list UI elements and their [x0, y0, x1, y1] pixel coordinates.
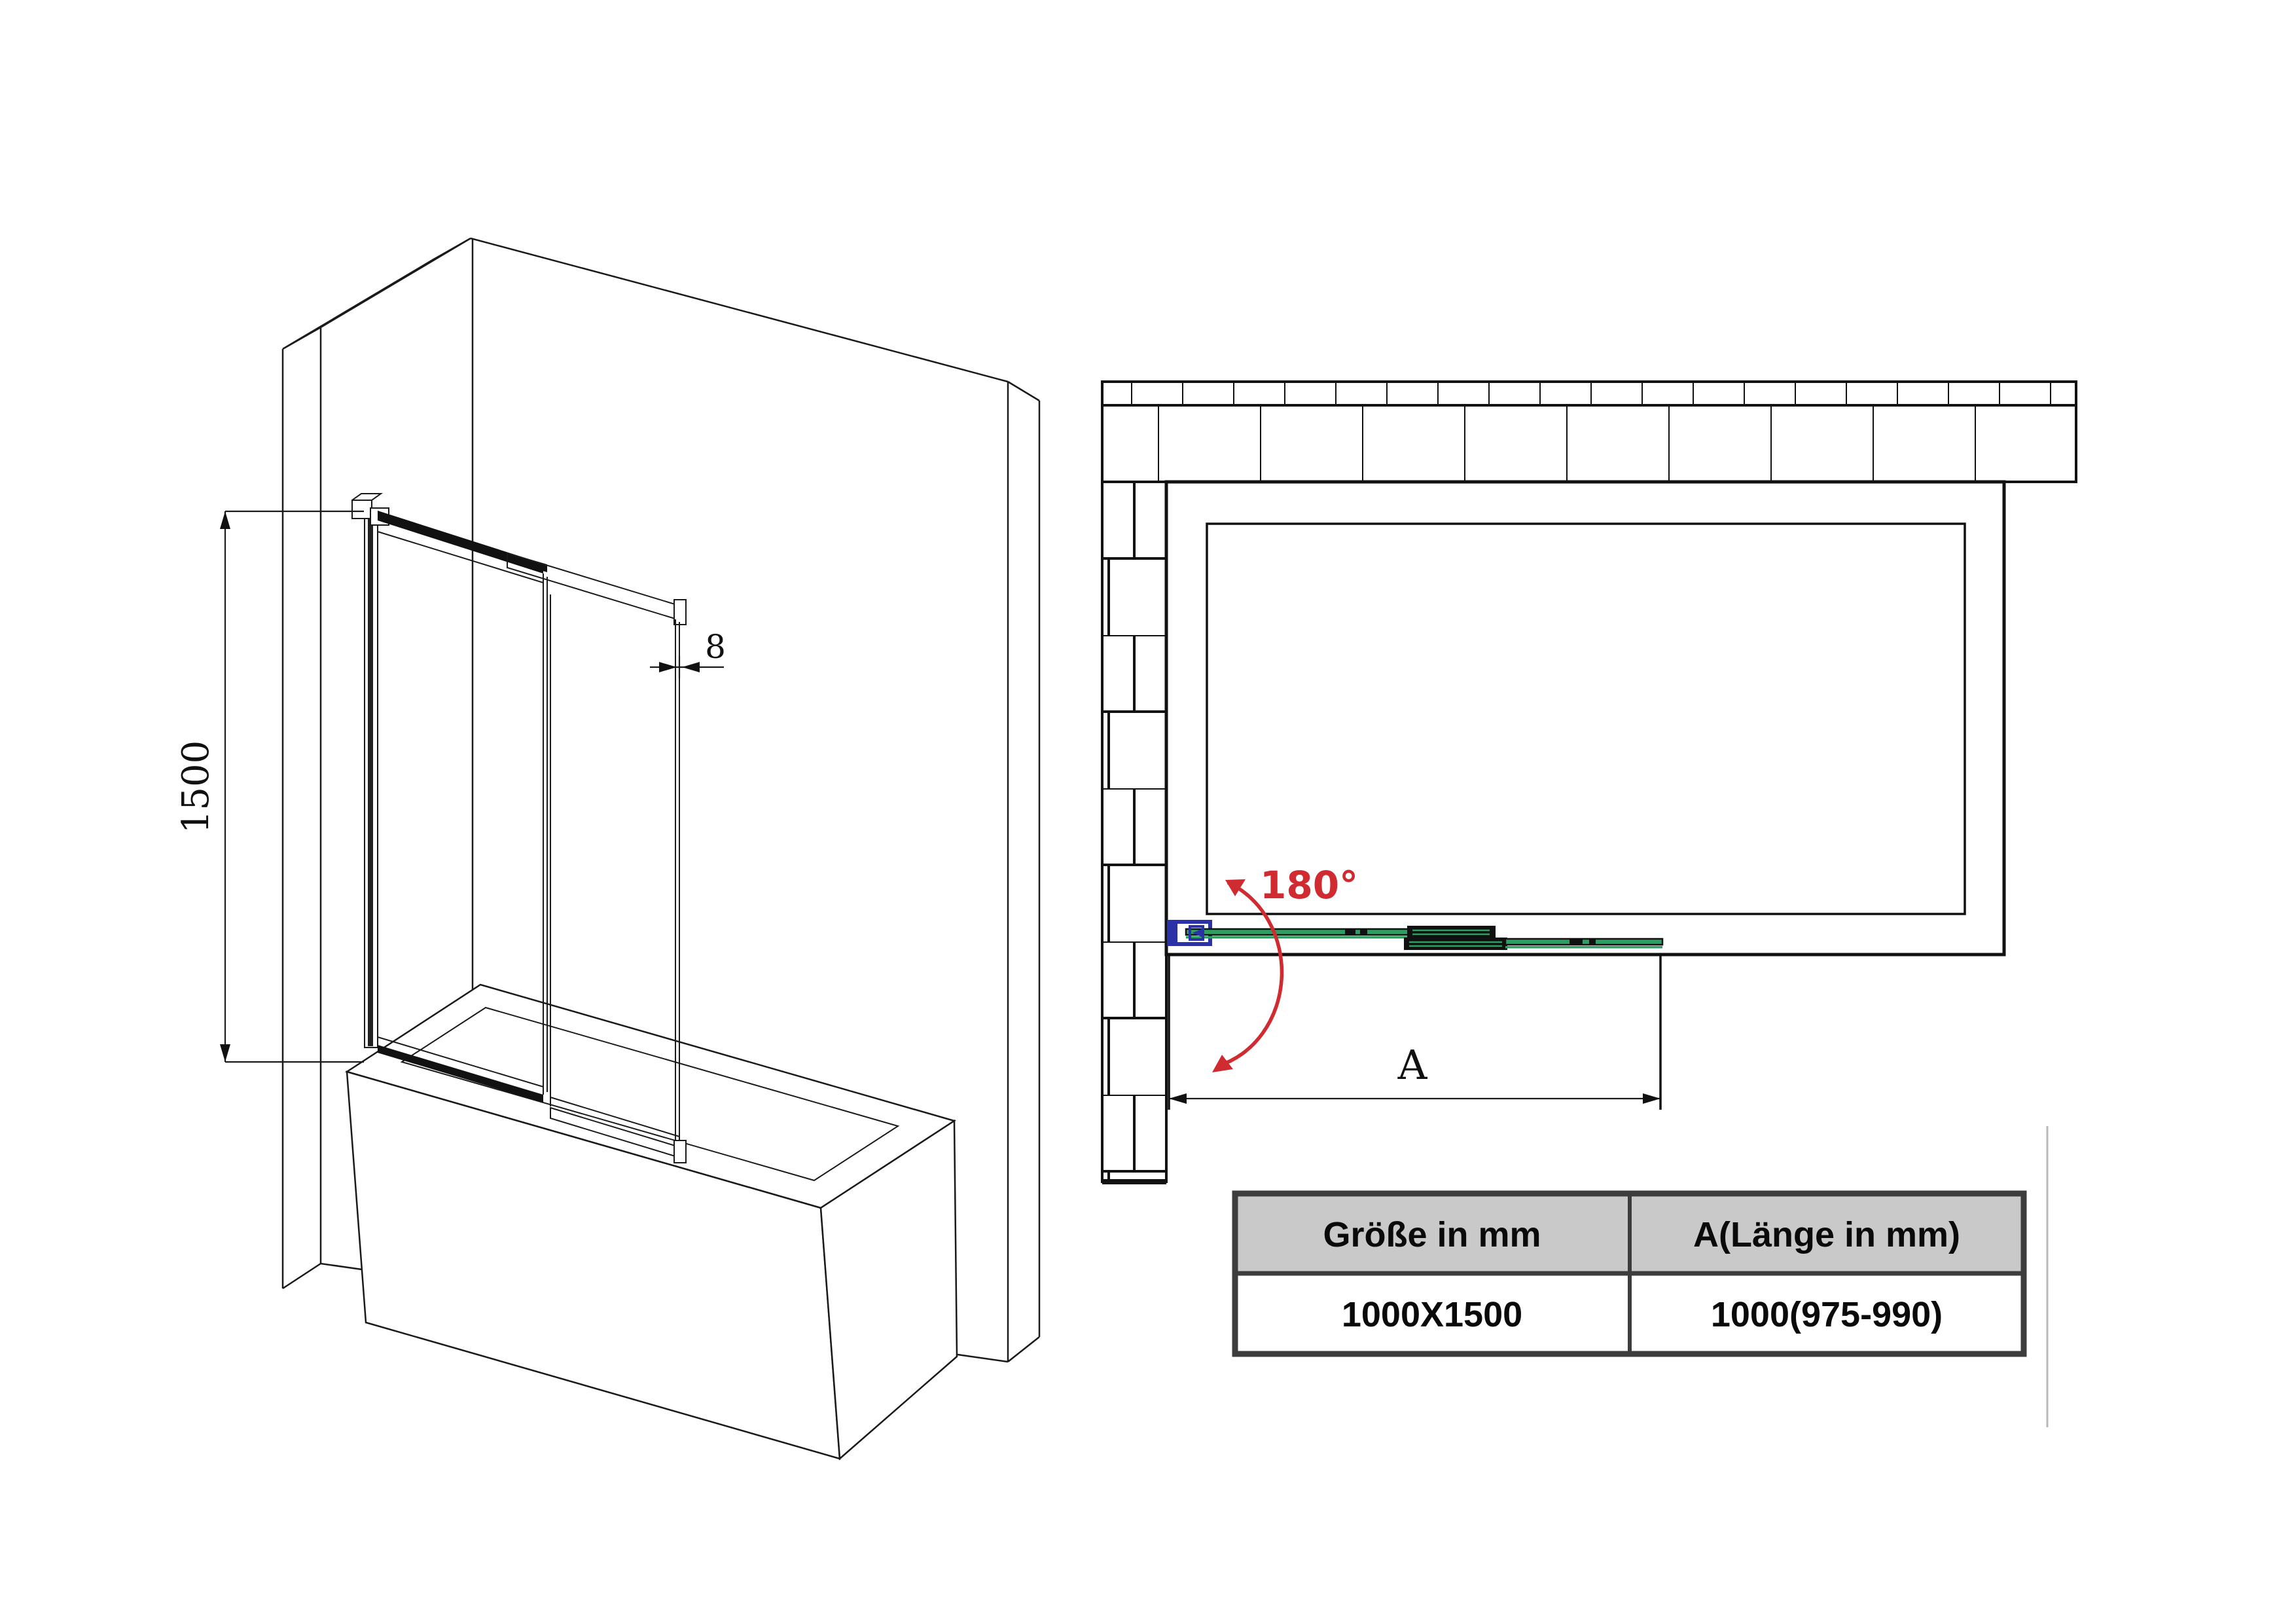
roller-hardware-sliding — [1404, 938, 1507, 950]
table-header-length: A(Länge in mm) — [1693, 1215, 1960, 1254]
tub-rim-outline — [1207, 524, 1965, 914]
swing-arc — [1218, 883, 1282, 1066]
table-header-size: Größe in mm — [1323, 1215, 1541, 1254]
roller-hardware-fixed — [1407, 926, 1496, 938]
sliding-panel-bar — [1505, 939, 1662, 945]
length-dimension-label: A — [1397, 1041, 1428, 1089]
page: { "drawing": { "type": "shower-screen in… — [0, 0, 2296, 1623]
technical-drawing-canvas: 1500 8 — [0, 0, 2296, 1623]
isometric-view: 1500 8 — [175, 238, 1039, 1459]
height-dimension-label: 1500 — [175, 740, 217, 834]
swing-annotation: 180° — [1212, 863, 1358, 1072]
table-value-size: 1000X1500 — [1342, 1295, 1522, 1334]
length-dimension: A — [1169, 1041, 1660, 1104]
fixed-panel-top-rail — [378, 511, 543, 574]
height-dimension: 1500 — [175, 511, 364, 1062]
glass-thickness-label: 8 — [705, 628, 726, 666]
fixed-panel-bar — [1186, 929, 1410, 935]
brick-wall-top — [1102, 382, 2076, 482]
glass-panels-section — [1169, 922, 1662, 950]
dimension-table: Größe in mm A(Länge in mm) 1000X1500 100… — [1235, 1194, 2024, 1354]
swing-angle-label: 180° — [1260, 863, 1358, 907]
wall-profile-cap — [352, 500, 372, 519]
table-value-length: 1000(975-990) — [1711, 1295, 1943, 1334]
glass-thickness-dimension: 8 — [650, 628, 726, 678]
brick-wall-left — [1102, 482, 1166, 1182]
